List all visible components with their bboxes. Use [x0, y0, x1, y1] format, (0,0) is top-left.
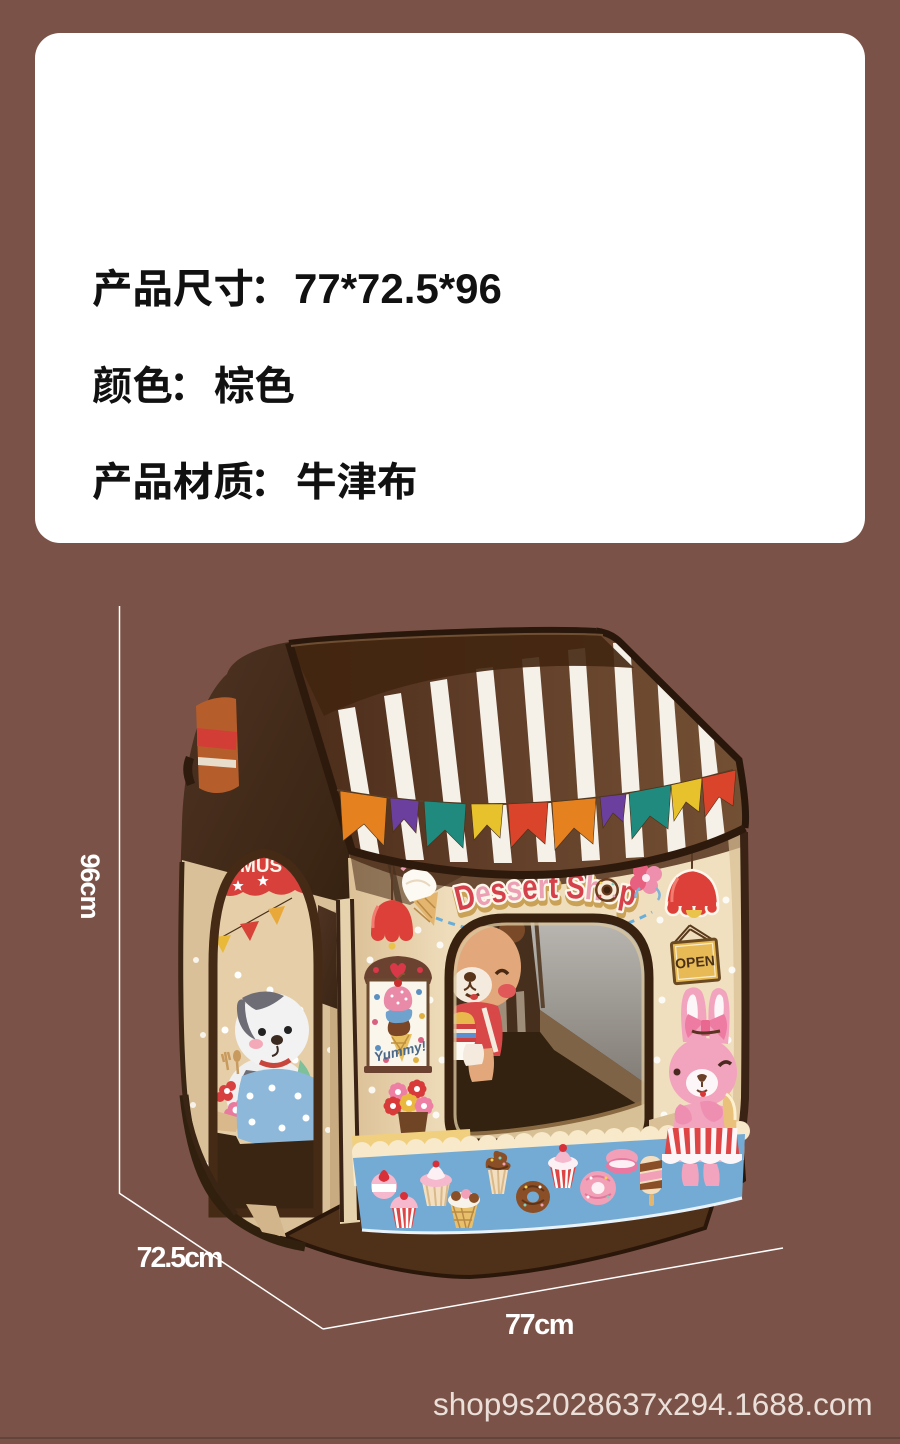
- svg-text:77cm: 77cm: [505, 1309, 573, 1341]
- svg-text:77*72.5*96: 77*72.5*96: [294, 265, 502, 312]
- svg-text:96cm: 96cm: [75, 853, 105, 918]
- svg-text:72.5cm: 72.5cm: [137, 1242, 222, 1274]
